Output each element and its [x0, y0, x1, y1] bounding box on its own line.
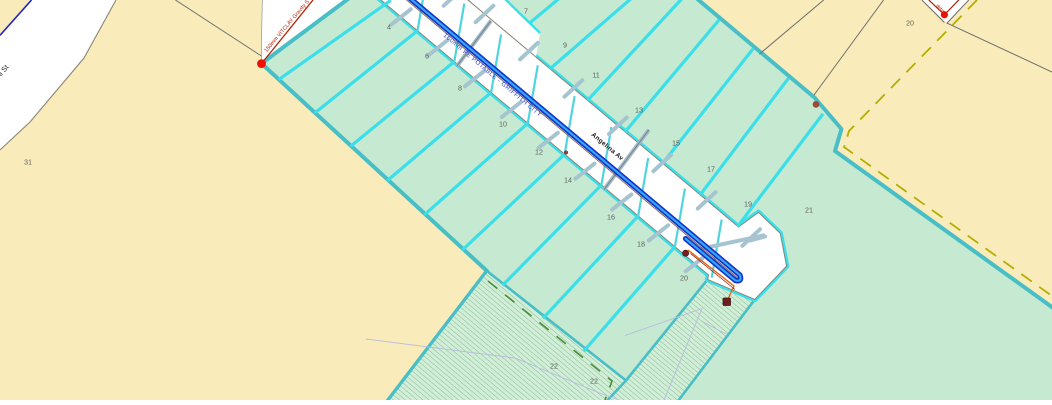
- svg-text:13: 13: [635, 106, 643, 115]
- svg-text:14: 14: [564, 176, 572, 185]
- svg-text:22: 22: [550, 362, 558, 371]
- svg-text:17: 17: [707, 165, 715, 174]
- svg-text:19: 19: [744, 200, 752, 209]
- svg-text:18: 18: [637, 240, 645, 249]
- svg-text:20: 20: [680, 274, 688, 283]
- svg-text:31: 31: [24, 158, 32, 167]
- svg-text:8: 8: [458, 84, 462, 93]
- svg-text:7: 7: [524, 7, 528, 16]
- svg-text:21: 21: [805, 206, 813, 215]
- svg-text:10: 10: [499, 120, 507, 129]
- svg-text:11: 11: [592, 71, 599, 80]
- svg-text:20: 20: [906, 19, 914, 28]
- svg-text:12: 12: [535, 148, 543, 157]
- svg-text:9: 9: [563, 41, 567, 50]
- svg-text:15: 15: [672, 139, 680, 148]
- svg-text:6: 6: [425, 52, 429, 61]
- svg-text:16: 16: [607, 213, 615, 222]
- svg-text:22: 22: [590, 377, 598, 386]
- svg-text:4: 4: [387, 23, 391, 32]
